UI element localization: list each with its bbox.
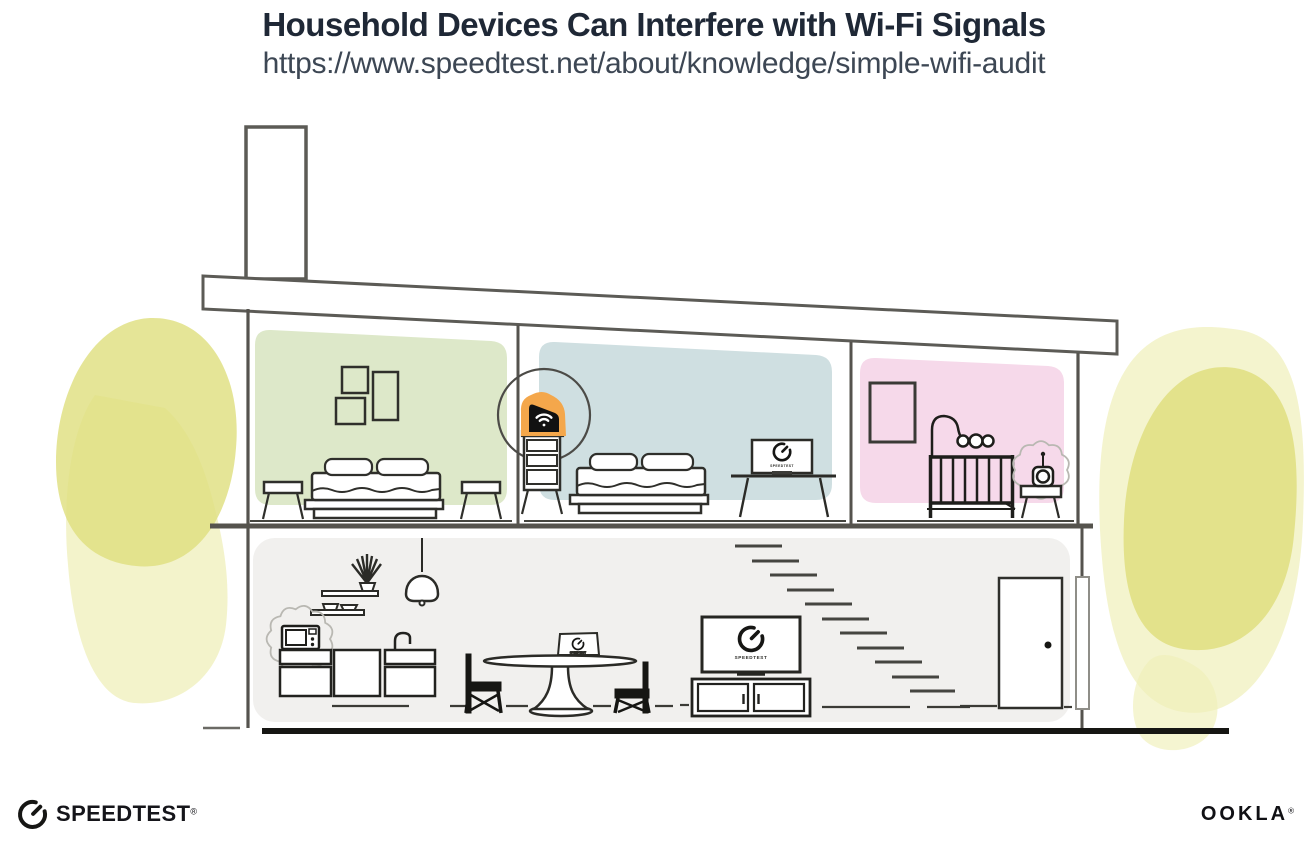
tv-speedtest-label: SPEEDTEST (735, 655, 768, 660)
ookla-logo: OOKLA® (1201, 803, 1294, 826)
monitor-speedtest-label: SPEEDTEST (770, 464, 794, 468)
foliage-left (56, 318, 237, 703)
router-dresser (522, 431, 563, 514)
media-console (692, 679, 810, 716)
chimney (246, 127, 306, 279)
front-door (999, 578, 1062, 708)
page-root: Household Devices Can Interfere with Wi-… (0, 0, 1308, 861)
house-illustration: SPEEDTEST (0, 0, 1308, 861)
doorknob (1045, 642, 1052, 649)
tv-screen (702, 617, 800, 672)
shelf-upper (322, 591, 378, 596)
microwave (282, 626, 319, 649)
cabinet-right-sink (385, 650, 435, 664)
tv-and-console: SPEEDTEST (692, 617, 810, 716)
speedtest-registered-mark: ® (190, 806, 197, 816)
laptop-speedtest-label: SPEEDTEST (570, 653, 587, 655)
cabinet-middle (334, 650, 380, 696)
speedtest-wordmark: SPEEDTEST (56, 801, 190, 826)
table-top (484, 656, 636, 667)
foliage-right (1099, 327, 1304, 750)
cabinet-left-drawer (280, 650, 331, 664)
ookla-wordmark: OOKLA (1201, 803, 1288, 825)
speedtest-logo: SPEEDTEST® (16, 797, 197, 830)
cabinet-right-door (385, 667, 435, 696)
monitor-stand (772, 471, 792, 475)
downspout (1076, 577, 1089, 709)
foliage-left-core (56, 318, 237, 566)
ookla-registered-mark: ® (1288, 807, 1294, 816)
speedtest-gauge-logo-icon (16, 797, 49, 830)
cabinet-left-door (280, 667, 331, 696)
